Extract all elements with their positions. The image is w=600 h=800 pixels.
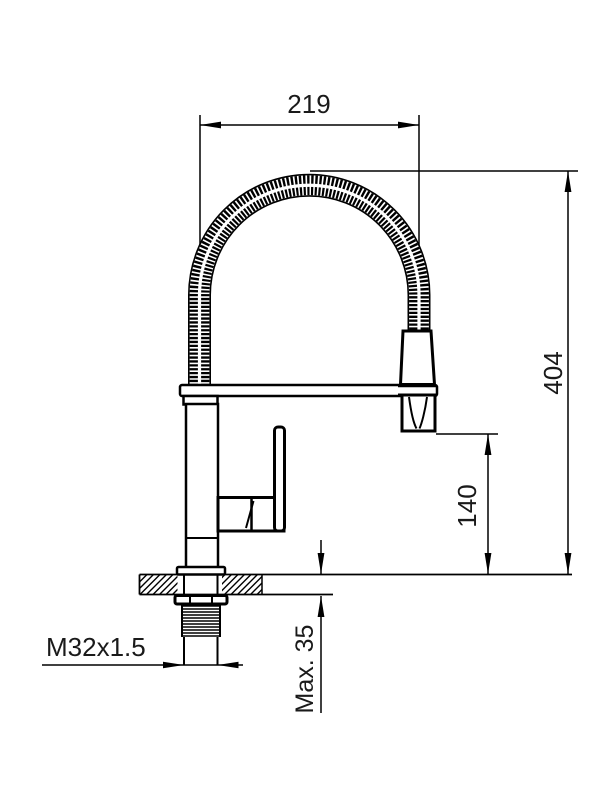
spray-head-nozzle xyxy=(402,395,435,431)
faucet-dimension-drawing: 219 404 140 Max. 35 M32x1.5 xyxy=(0,0,600,800)
handle-grip xyxy=(275,427,285,531)
deck-hatch-right xyxy=(222,575,262,595)
thread-lines xyxy=(183,606,220,636)
arrowhead-up-icon xyxy=(485,434,492,455)
spring-hose xyxy=(200,185,420,386)
threaded-shank xyxy=(182,604,220,637)
arrowhead-right-icon xyxy=(163,662,184,669)
dimension-thread: M32x1.5 xyxy=(42,632,243,668)
arrowhead-up-icon xyxy=(565,171,572,192)
base-flange xyxy=(177,567,225,575)
dimension-total-height: 404 xyxy=(310,171,578,574)
spout-width-label: 219 xyxy=(287,89,330,119)
arrowhead-down-icon xyxy=(485,553,492,574)
spray-head-grip xyxy=(401,331,435,385)
dimension-outlet-height: 140 xyxy=(436,434,498,574)
total-height-label: 404 xyxy=(538,351,568,394)
arrowhead-left-icon xyxy=(218,662,239,669)
mounting-nut xyxy=(175,596,227,605)
arrowhead-up-icon xyxy=(318,596,325,617)
faucet-body xyxy=(186,404,218,568)
arrowhead-down-icon xyxy=(565,553,572,574)
deck-thickness-label: Max. 35 xyxy=(291,625,319,714)
shank-lower-rod xyxy=(184,637,218,665)
technical-drawing-canvas: 219 404 140 Max. 35 M32x1.5 xyxy=(0,0,600,800)
arrowhead-down-icon xyxy=(318,553,325,574)
lever-handle xyxy=(218,427,285,531)
outlet-height-label: 140 xyxy=(452,484,482,527)
countertop-section xyxy=(140,575,573,597)
dimension-deck-thickness: Max. 35 xyxy=(291,540,324,713)
faucet-drawing xyxy=(140,185,573,665)
arrowhead-right-icon xyxy=(398,122,419,129)
thread-size-label: M32x1.5 xyxy=(46,632,146,662)
arrowhead-left-icon xyxy=(200,122,221,129)
deck-hatch-left xyxy=(140,575,178,595)
